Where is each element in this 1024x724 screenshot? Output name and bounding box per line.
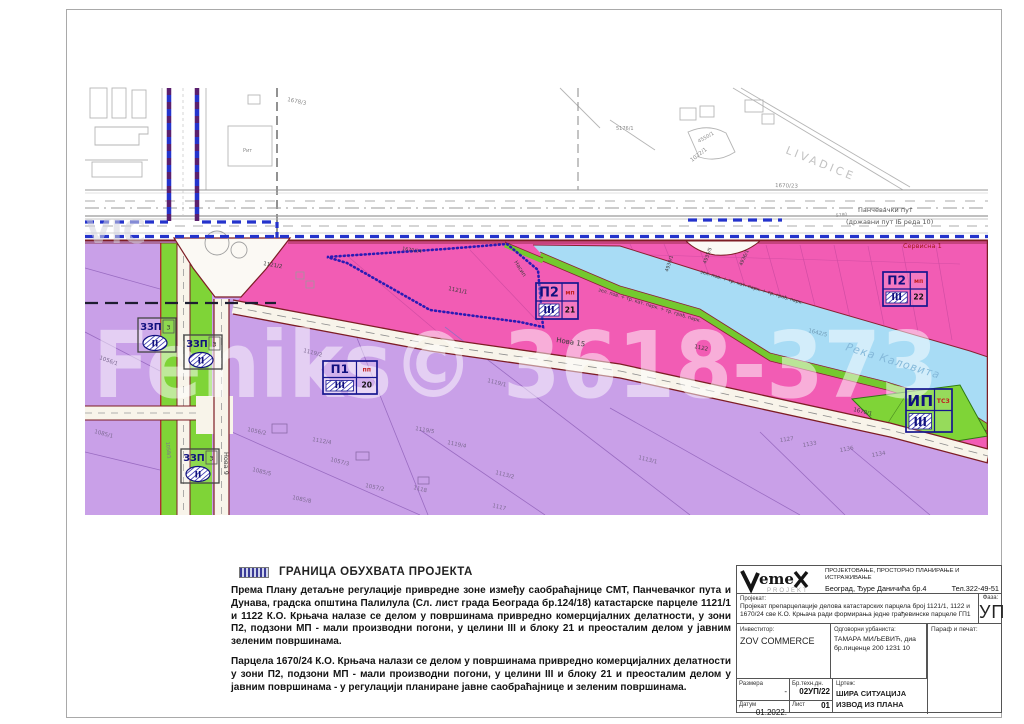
zone-stamp-p2-block21: П2мпIII21 [536, 283, 578, 319]
sheet-value: 01 [821, 701, 830, 710]
phase-label: Фаза: [983, 595, 999, 601]
investor-label: Инвеститор: [740, 627, 774, 633]
description-paragraph-1: Према Плану детаљне регулације привредне… [231, 585, 731, 649]
zone-stamp-p2-block22: П2мпIII22 [883, 272, 927, 306]
investor-cell: Инвеститор: ZOV COMMERCE [737, 624, 831, 679]
drawing-title-2: ИЗВОД ИЗ ПЛАНА [836, 700, 924, 709]
map-label-servisna-1: Сервисна 1 [903, 242, 942, 250]
legend-title: ГРАНИЦА ОБУХВАТА ПРОЈЕКТА [279, 566, 473, 578]
stamp-subzone-code: 3 [209, 455, 213, 463]
zone-stamp-ip-ts3: ИПТС3III [906, 389, 952, 432]
company-info: ПРОЈЕКТОВАЊЕ, ПРОСТОРНО ПЛАНИРАЊЕ И ИСТР… [825, 566, 1001, 593]
stamp-zone-code: ЗЗП [183, 453, 204, 464]
stamp-subzone-code: 3 [212, 341, 216, 349]
map-label-16: Рит [243, 148, 252, 154]
urbanist-license: бр.лиценце 200 1231 10 [834, 645, 923, 652]
tech-number-cell: Бр.техн.дн. 02УП/22 [790, 679, 833, 701]
urbanist-name: ТАМАРА МИЉЕВИЋ, диа [834, 636, 923, 643]
company-phone: Тел.322-49-51 [952, 584, 999, 593]
stamp-unit-roman: III [914, 415, 927, 429]
map-label-road-name-2: (државни пут IБ реда 10) [846, 218, 933, 226]
title-block: eme PROJEKT ПРОЈЕКТОВАЊЕ, ПРОСТОРНО ПЛАН… [736, 565, 1002, 713]
title-block-header: eme PROJEKT ПРОЈЕКТОВАЊЕ, ПРОСТОРНО ПЛАН… [737, 566, 1001, 594]
stamp-subzone-code: 3 [166, 324, 170, 332]
stamp-zone-code: ИП [907, 392, 933, 410]
description-paragraph-2: Парцела 1670/24 К.О. Крњача налази се де… [231, 656, 731, 694]
zone-stamp-zzp-1: ЗЗП3II [138, 318, 176, 352]
map-label-road-name-1: Панчевачки пут [858, 206, 913, 214]
drawing-label: Цртеж: [836, 681, 855, 687]
date-cell: Датум 01.2022. [737, 701, 790, 713]
company-address: Београд, Ђуре Даничића бр.4 [825, 584, 926, 593]
scale-cell: Размера - [737, 679, 790, 701]
phase-value: УП [979, 602, 1002, 623]
legend-item-boundary: ГРАНИЦА ОБУХВАТА ПРОЈЕКТА [239, 566, 731, 578]
company-logo: eme PROJEKT [737, 567, 825, 593]
phase-cell: Фаза: УП [979, 594, 1002, 624]
map-label-15: 1670/23 [775, 183, 799, 190]
scale-value: - [739, 687, 787, 696]
stamp-unit-roman: II [198, 357, 205, 367]
signature-label: Параф и печат: [931, 626, 978, 633]
stamp-unit-roman: II [152, 340, 159, 350]
stamp-unit-roman: III [543, 305, 554, 316]
plan-map: Feniks© 3618-373VIC LIVADICEПанчевачки п… [85, 85, 988, 515]
date-label: Датум [739, 702, 756, 708]
urbanist-cell: Одговорни урбаниста: ТАМАРА МИЉЕВИЋ, диа… [831, 624, 927, 679]
zone-stamp-p1-block20: П1ппIII20 [323, 361, 377, 394]
stamp-unit-roman: III [335, 380, 345, 391]
logo-text: eme [759, 570, 794, 588]
stamp-unit-roman: III [891, 292, 902, 303]
stamp-block-number: 22 [913, 293, 923, 302]
project-label: Пројекат: [740, 596, 766, 602]
tech-number-value: 02УП/22 [792, 687, 830, 696]
zone-stamp-zzp-2: ЗЗП3II [184, 335, 222, 369]
signature-cell: Параф и печат: [927, 624, 1002, 714]
stamp-zone-code: ЗЗП [140, 322, 161, 333]
map-label-14: 5176/1 [616, 126, 634, 132]
urbanist-label: Одговорни урбаниста: [834, 627, 896, 633]
sheet-cell: Лист 01 [790, 701, 833, 713]
stamp-subzone-code: мп [565, 290, 574, 297]
stamp-zone-code: П2 [539, 286, 559, 301]
zone-stamp-zzp-3: ЗЗП3II [181, 449, 219, 483]
date-value: 01.2022. [756, 708, 787, 717]
watermark-watermark-corner: VIC [86, 213, 146, 251]
stamp-subzone-code: мп [914, 278, 923, 285]
stamp-zone-code: П1 [331, 362, 349, 376]
project-cell: Пројекат: Пројекат препарцелације делова… [737, 594, 979, 624]
drawing-title-1: ШИРА СИТУАЦИЈА [836, 689, 924, 698]
logo-subtext: PROJEKT [767, 588, 809, 593]
stamp-zone-code: ЗЗП [186, 339, 207, 350]
investor-value: ZOV COMMERCE [740, 636, 827, 646]
project-description: Пројекат препарцелације делова катастарс… [740, 603, 975, 619]
stamp-unit-roman: II [195, 471, 202, 481]
map-label-nova-9: Нова 9 [222, 452, 230, 475]
stamp-zone-code: П2 [887, 274, 906, 288]
sheet-label: Лист [792, 702, 805, 708]
stamp-subzone-code: пп [362, 367, 371, 374]
drawing-cell: Цртеж: ШИРА СИТУАЦИЈА ИЗВОД ИЗ ПЛАНА [833, 679, 927, 714]
logo-x-icon [795, 572, 807, 587]
stamp-subzone-code: ТС3 [937, 398, 950, 405]
legend-block: ГРАНИЦА ОБУХВАТА ПРОЈЕКТА Према Плану де… [231, 566, 731, 694]
logo-check-icon [742, 571, 758, 589]
map-label-road-chainage: 5780 [836, 212, 848, 219]
project-boundary-symbol [239, 567, 269, 578]
company-activity: ПРОЈЕКТОВАЊЕ, ПРОСТОРНО ПЛАНИРАЊЕ И ИСТР… [825, 568, 999, 582]
stamp-block-number: 21 [565, 306, 575, 315]
stamp-block-number: 20 [362, 381, 372, 390]
